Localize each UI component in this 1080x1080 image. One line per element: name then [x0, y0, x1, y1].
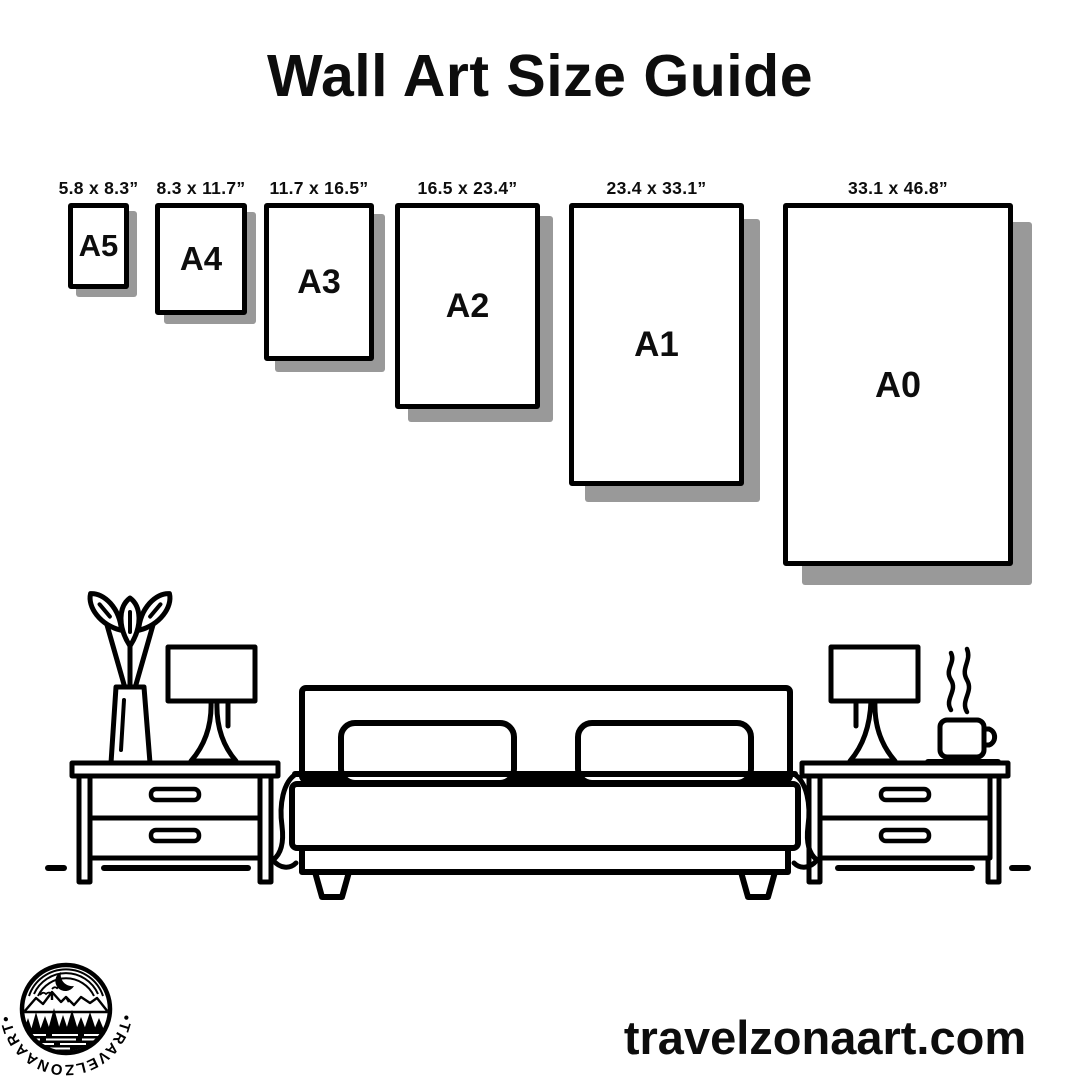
website-url: travelzonaart.com	[560, 1010, 1080, 1065]
nightstand-icon	[802, 763, 1008, 882]
paper-size-a1: 23.4 x 33.1” A1	[569, 203, 744, 486]
paper-size-a3: 11.7 x 16.5” A3	[264, 203, 374, 361]
paper-size-code: A3	[297, 263, 340, 302]
wall-art-size-guide-poster: Wall Art Size Guide 5.8 x 8.3” A5 8.3 x …	[0, 0, 1080, 1080]
bed-icon	[273, 688, 817, 897]
bedroom-illustration	[0, 580, 1080, 910]
paper-dimensions-label: 5.8 x 8.3”	[59, 178, 139, 199]
paper-size-code: A5	[79, 228, 119, 264]
page-title: Wall Art Size Guide	[0, 42, 1080, 110]
paper-size-code: A0	[875, 364, 921, 406]
coffee-cup-icon	[928, 649, 998, 762]
paper-dimensions-label: 23.4 x 33.1”	[607, 178, 707, 199]
nightstand-icon	[72, 763, 278, 882]
paper-dimensions-label: 8.3 x 11.7”	[157, 178, 246, 199]
paper-size-a5: 5.8 x 8.3” A5	[68, 203, 129, 289]
table-lamp-icon	[168, 647, 255, 761]
paper-size-code: A4	[180, 240, 222, 278]
paper-size-a2: 16.5 x 23.4” A2	[395, 203, 540, 409]
paper-size-a0: 33.1 x 46.8” A0	[783, 203, 1013, 566]
brand-logo-badge: •TRAVELZONAART• •TRAVELZONAART•	[0, 930, 140, 1080]
paper-dimensions-label: 33.1 x 46.8”	[848, 178, 948, 199]
paper-size-code: A1	[634, 325, 679, 365]
mountains-icon	[24, 992, 108, 1012]
paper-dimensions-label: 11.7 x 16.5”	[270, 178, 369, 199]
steam-icon	[965, 649, 969, 712]
paper-size-a4: 8.3 x 11.7” A4	[155, 203, 247, 315]
steam-icon	[949, 653, 953, 710]
plant-vase-icon	[84, 588, 177, 763]
table-lamp-icon	[831, 647, 918, 761]
paper-dimensions-label: 16.5 x 23.4”	[418, 178, 518, 199]
paper-size-code: A2	[446, 287, 489, 326]
